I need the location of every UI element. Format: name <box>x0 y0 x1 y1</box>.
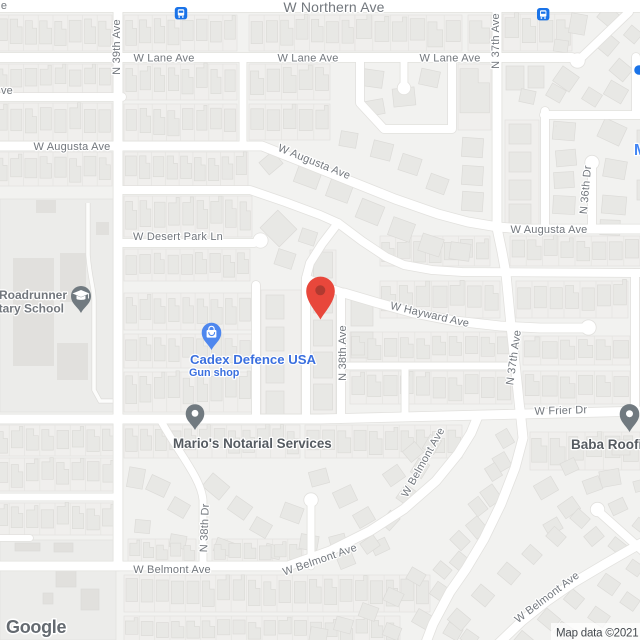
svg-text:Roadrunner: Roadrunner <box>0 288 67 302</box>
svg-text:W Augusta Ave: W Augusta Ave <box>510 224 587 236</box>
svg-text:W Desert Park Ln: W Desert Park Ln <box>133 231 223 243</box>
svg-text:W Belmont Ave: W Belmont Ave <box>133 564 211 576</box>
svg-text:W Lane Ave: W Lane Ave <box>419 53 480 65</box>
svg-text:N 38th Dr: N 38th Dr <box>198 503 212 552</box>
svg-text:W Augusta Ave: W Augusta Ave <box>33 141 110 153</box>
svg-text:W Frier Dr: W Frier Dr <box>534 404 587 418</box>
svg-text:Baba Roofing: Baba Roofing <box>571 437 640 452</box>
svg-text:Google: Google <box>6 617 66 637</box>
svg-text:W Lane Ave: W Lane Ave <box>133 53 194 65</box>
svg-text:Mario's Notarial Services: Mario's Notarial Services <box>173 436 332 451</box>
svg-text:ve: ve <box>1 85 13 97</box>
svg-text:N 38th Ave: N 38th Ave <box>337 325 349 381</box>
svg-text:e: e <box>1 0 7 12</box>
svg-text:tary School: tary School <box>0 302 64 316</box>
svg-text:Gun shop: Gun shop <box>189 367 240 379</box>
svg-text:Cadex Defence USA: Cadex Defence USA <box>190 352 317 367</box>
svg-text:W Lane Ave: W Lane Ave <box>277 53 338 65</box>
svg-text:M: M <box>634 142 640 159</box>
svg-text:W Northern Ave: W Northern Ave <box>283 0 384 15</box>
svg-text:N 39th Ave: N 39th Ave <box>111 19 123 75</box>
svg-text:N 37th Ave: N 37th Ave <box>490 13 502 69</box>
svg-text:Map data ©2021: Map data ©2021 <box>556 628 638 640</box>
